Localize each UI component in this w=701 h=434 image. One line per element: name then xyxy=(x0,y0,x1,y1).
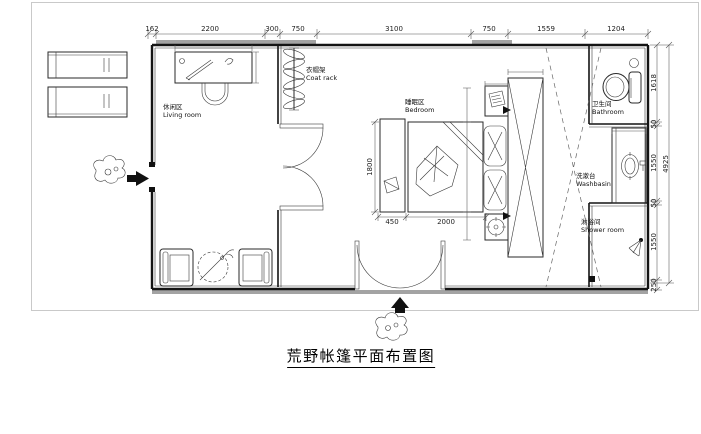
dim-right-50a: 50 xyxy=(650,120,658,129)
partition-dashed-x xyxy=(546,48,601,287)
dimension-lines xyxy=(145,29,674,293)
label-shower-room: 淋浴间 Shower room xyxy=(581,218,624,235)
label-coat-rack-cn: 衣帽架 xyxy=(306,66,326,74)
dim-right-4925: 4925 xyxy=(662,155,670,173)
dim-right-1550a: 1550 xyxy=(650,154,658,172)
label-coat-rack-en: Coat rack xyxy=(306,74,337,82)
label-washbasin: 洗漱台 Washbasin xyxy=(576,172,611,189)
lounger-top-icon xyxy=(48,52,127,78)
entrance-arrow-left-icon xyxy=(127,171,149,186)
dim-top-1559: 1559 xyxy=(537,25,555,33)
dim-right-250: 250 xyxy=(650,278,658,291)
label-shower-room-cn: 淋浴间 xyxy=(581,218,601,226)
label-bathroom: 卫生间 Bathroom xyxy=(592,100,624,117)
coat-rack-icon xyxy=(282,47,305,110)
label-bedroom: 睡眠区 Bedroom xyxy=(405,98,434,115)
left-double-door-icon xyxy=(280,124,323,210)
round-table-icon xyxy=(198,250,234,282)
pillow-icons xyxy=(484,126,506,210)
bed-icon xyxy=(408,122,483,212)
label-bedroom-en: Bedroom xyxy=(405,106,434,114)
lounger-bottom-icon xyxy=(48,87,127,117)
bedside-bench-icon xyxy=(380,119,405,212)
label-bathroom-cn: 卫生间 xyxy=(592,100,612,108)
desk-icon xyxy=(175,52,252,83)
dim-top-3100: 3100 xyxy=(385,25,403,33)
shower-head-icon xyxy=(629,238,643,256)
label-living-room: 休闲区 Living room xyxy=(163,103,201,120)
desk-chair-icon xyxy=(202,83,228,105)
label-bathroom-en: Bathroom xyxy=(592,108,624,116)
floorplan-drawing xyxy=(0,0,701,434)
armchair-right-icon xyxy=(239,249,272,286)
dim-top-1204: 1204 xyxy=(607,25,625,33)
plant-sketch-left-icon xyxy=(94,156,126,184)
floor-drain-icon xyxy=(589,276,595,282)
wardrobe-icon xyxy=(508,78,543,257)
nightstand-bottom-icon xyxy=(485,212,511,240)
outer-walls xyxy=(149,45,648,289)
dim-right-1618: 1618 xyxy=(650,74,658,92)
dim-right-1550b: 1550 xyxy=(650,233,658,251)
washbasin-counter-icon xyxy=(612,128,646,203)
dim-bed-1800: 1800 xyxy=(366,158,374,176)
dim-top-162: 162 xyxy=(145,25,158,33)
toilet-icon xyxy=(603,59,641,104)
dim-bed-450: 450 xyxy=(385,218,398,226)
plant-sketch-bottom-icon xyxy=(376,313,408,341)
label-shower-room-en: Shower room xyxy=(581,226,624,234)
sheet-frame xyxy=(32,3,699,311)
label-bedroom-cn: 睡眠区 xyxy=(405,98,425,106)
label-living-room-cn: 休闲区 xyxy=(163,103,183,111)
label-washbasin-cn: 洗漱台 xyxy=(576,172,596,180)
label-washbasin-en: Washbasin xyxy=(576,180,611,188)
label-coat-rack: 衣帽架 Coat rack xyxy=(306,66,337,83)
dim-bed-2000: 2000 xyxy=(437,218,455,226)
porch-steps xyxy=(152,40,648,294)
nightstand-top-icon xyxy=(485,86,511,116)
drawing-title: 荒野帐篷平面布置图 xyxy=(287,345,436,368)
dim-top-2200: 2200 xyxy=(201,25,219,33)
label-living-room-en: Living room xyxy=(163,111,201,119)
blanket-sketch xyxy=(416,146,458,196)
dim-top-750b: 750 xyxy=(482,25,495,33)
main-entrance-double-door-icon xyxy=(355,241,445,289)
armchair-left-icon xyxy=(160,249,193,286)
dim-top-750a: 750 xyxy=(291,25,304,33)
dim-top-300: 300 xyxy=(265,25,278,33)
dim-right-50b: 50 xyxy=(650,199,658,208)
floor-plan-canvas: 休闲区 Living room 衣帽架 Coat rack 睡眠区 Bedroo… xyxy=(0,0,701,434)
